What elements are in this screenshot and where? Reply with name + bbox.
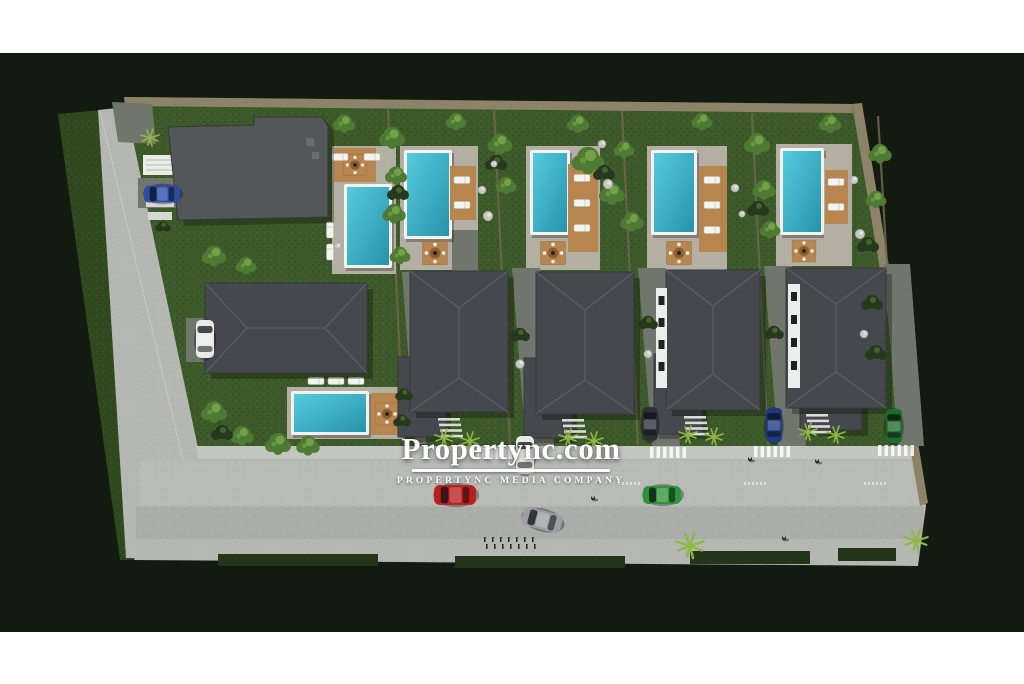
villa-1-roof	[168, 117, 334, 226]
villa-2-roof	[205, 283, 373, 379]
car-navy-driveway	[764, 407, 784, 445]
pool-5	[651, 150, 699, 238]
villa-4-roof	[524, 272, 640, 443]
car-blue-parked	[143, 184, 183, 205]
truck-green-driveway	[884, 408, 904, 446]
villa-5-roof	[654, 270, 766, 439]
aerial-site-plan-render: Propertync.com PROPERTYNC MEDIA COMPANY	[0, 0, 1024, 684]
van-white-parked	[194, 319, 216, 361]
car-green-road	[642, 484, 684, 506]
site-plan-canvas	[0, 0, 1024, 684]
car-dark-driveway	[640, 406, 659, 443]
pool-2	[291, 391, 371, 438]
pool-6	[780, 148, 826, 238]
pool-1	[344, 184, 394, 271]
pool-3	[404, 150, 454, 242]
car-red-road	[433, 483, 479, 507]
villa-3-roof	[398, 271, 514, 442]
pool-4	[530, 150, 572, 238]
car-white-driveway	[514, 435, 536, 477]
